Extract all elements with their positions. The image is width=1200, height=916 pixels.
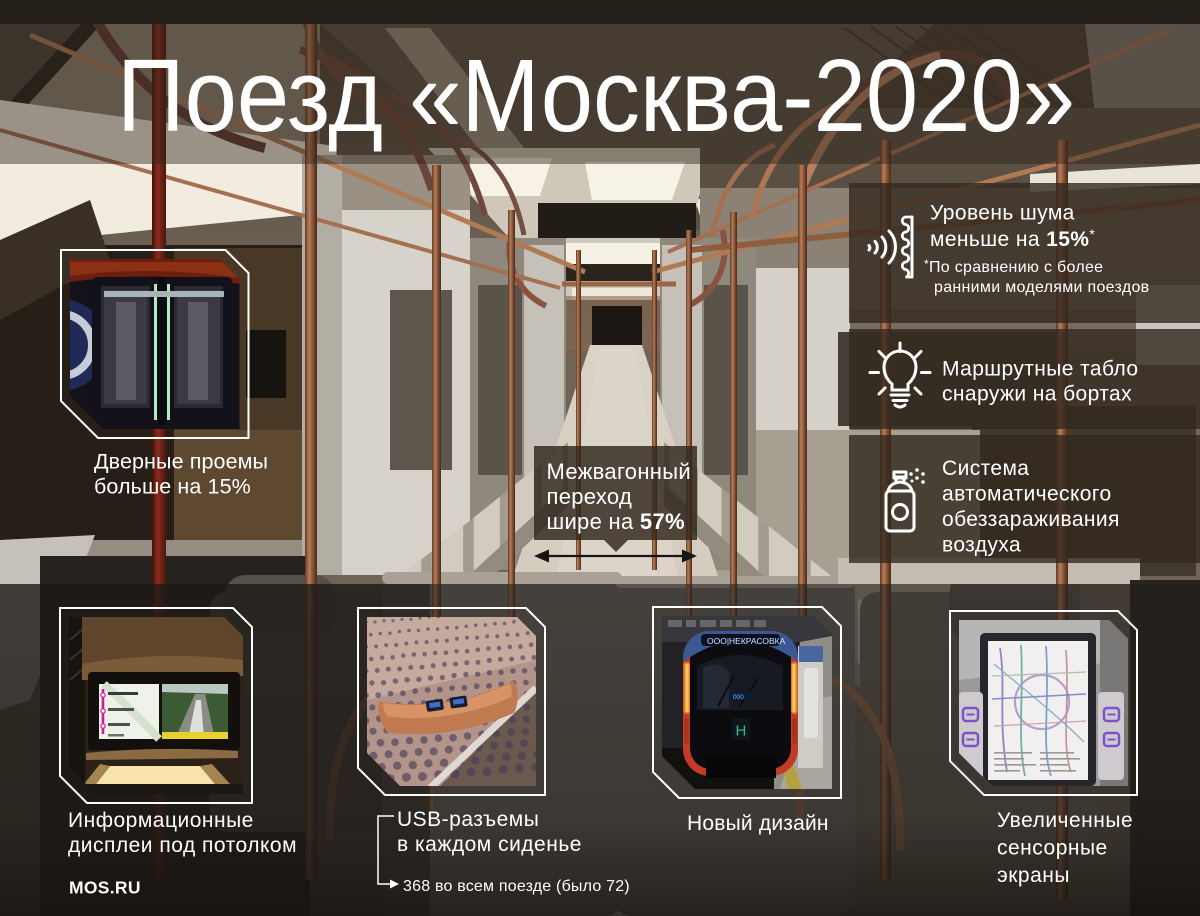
svg-text:переход: переход: [547, 484, 633, 509]
svg-text:снаружи на бортах: снаружи на бортах: [942, 383, 1132, 406]
svg-text:в каждом сиденье: в каждом сиденье: [397, 833, 582, 856]
svg-text:Дверные проемы: Дверные проемы: [94, 450, 268, 474]
svg-text:Новый дизайн: Новый дизайн: [687, 812, 829, 835]
svg-text:меньше на 15%*: меньше на 15%*: [930, 226, 1095, 251]
svg-text:шире на 57%: шире на 57%: [547, 509, 685, 534]
svg-text:ранними моделями поездов: ранними моделями поездов: [934, 279, 1149, 296]
svg-text:000: 000: [733, 694, 744, 701]
svg-text:Маршрутные табло: Маршрутные табло: [942, 358, 1138, 381]
svg-text:*По сравнению с более: *По сравнению с более: [924, 257, 1103, 276]
svg-text:Поезд «Москва-2020»: Поезд «Москва-2020»: [117, 38, 1075, 153]
svg-text:MOS.RU: MOS.RU: [69, 878, 141, 898]
svg-text:Информационные: Информационные: [68, 809, 254, 832]
svg-text:больше на 15%: больше на 15%: [94, 475, 251, 499]
svg-text:обеззараживания: обеззараживания: [942, 508, 1120, 531]
svg-text:экраны: экраны: [997, 864, 1070, 887]
svg-text:Межвагонный: Межвагонный: [547, 459, 691, 484]
svg-text:ООО|НЕКРАСОВКА: ООО|НЕКРАСОВКА: [707, 636, 786, 646]
svg-text:дисплеи под потолком: дисплеи под потолком: [68, 834, 297, 857]
svg-text:Уровень шума: Уровень шума: [930, 202, 1075, 225]
svg-text:автоматического: автоматического: [942, 483, 1112, 506]
svg-text:USB-разъемы: USB-разъемы: [397, 808, 539, 831]
svg-text:Н: Н: [736, 723, 747, 740]
svg-text:368 во всем поезде (было 72): 368 во всем поезде (было 72): [403, 878, 630, 895]
svg-text:Увеличенные: Увеличенные: [997, 809, 1133, 832]
svg-text:Система: Система: [942, 457, 1029, 480]
svg-text:сенсорные: сенсорные: [997, 837, 1108, 860]
svg-text:воздуха: воздуха: [942, 534, 1021, 557]
